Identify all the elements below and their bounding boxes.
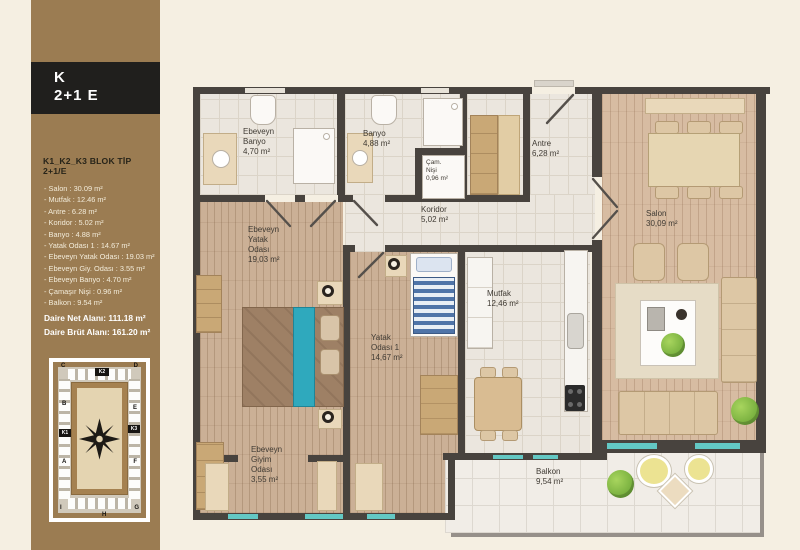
list-item: - Yatak Odası 1 : 14.67 m² [44,240,158,251]
site-units-bottom [68,498,131,509]
site-units-right [129,379,140,499]
block-label-e: E [133,405,137,411]
block-label-b: B [62,401,66,407]
list-item: - Ebeveyn Giy. Odası : 3.55 m² [44,263,158,274]
list-item: - Balkon : 9.54 m² [44,297,158,308]
list-item: - Ebeveyn Banyo : 4.70 m² [44,274,158,285]
block-title: K1_K2_K3 BLOK TİP 2+1/E [43,156,155,176]
list-item: - Mutfak : 12.46 m² [44,194,158,205]
list-item: - Banyo : 4.88 m² [44,229,158,240]
unit-block-letter: K [54,69,160,87]
block-label-f: F [133,459,137,465]
block-k2-marker: K2 [95,368,109,376]
block-label-c: C [61,363,65,369]
block-label-d: D [134,363,138,369]
site-courtyard-ring [71,382,128,495]
door-swing-lines [193,87,770,540]
site-plan-thumbnail: K2 K1 K3 C D B A E F I H G [49,358,150,522]
block-label-h: H [102,512,106,518]
unit-type-badge: K 2+1 E [31,62,160,114]
sidebar-panel: K 2+1 E K1_K2_K3 BLOK TİP 2+1/E - Salon … [31,0,160,550]
list-item: - Ebeveyn Yatak Odası : 19.03 m² [44,251,158,262]
block-label-i: I [60,505,62,511]
entry-doormat [534,80,574,87]
total-areas: Daire Net Alanı: 111.18 m² Daire Brüt Al… [44,311,158,339]
gross-area: Daire Brüt Alanı: 161.20 m² [44,325,158,339]
site-plan-map: K2 K1 K3 C D B A E F I H G [58,367,141,513]
site-courtyard [77,388,122,489]
list-item: - Çamaşır Nişi : 0.96 m² [44,286,158,297]
block-k3-marker: K3 [128,425,140,433]
block-label-a: A [62,459,66,465]
block-k1-marker: K1 [59,429,71,437]
unit-type-label: 2+1 E [54,87,160,105]
net-area: Daire Net Alanı: 111.18 m² [44,311,158,325]
floor-plan: EbeveynBanyo4,70 m² Banyo4,88 m² Çam.Niş… [193,87,770,540]
list-item: - Salon : 30.09 m² [44,183,158,194]
site-units-left [59,379,70,499]
list-item: - Koridor : 5.02 m² [44,217,158,228]
block-label-g: G [134,505,139,511]
list-item: - Antre : 6.28 m² [44,206,158,217]
room-area-list: - Salon : 30.09 m² - Mutfak : 12.46 m² -… [44,183,158,308]
compass-icon [77,416,122,462]
